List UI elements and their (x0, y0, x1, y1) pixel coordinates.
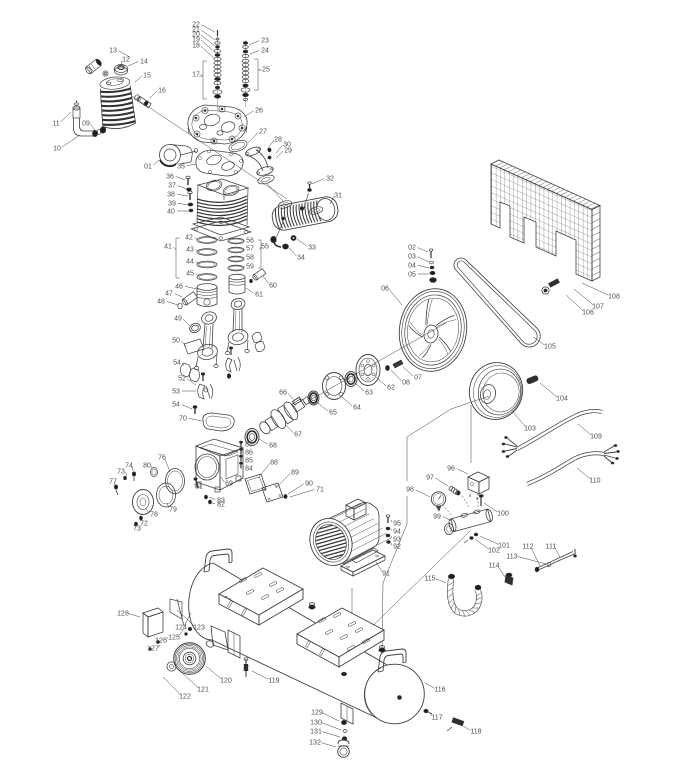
svg-text:80: 80 (143, 462, 151, 469)
svg-text:01: 01 (144, 163, 152, 170)
svg-text:42: 42 (185, 234, 193, 241)
svg-text:11: 11 (52, 120, 59, 127)
svg-text:63: 63 (365, 389, 373, 396)
svg-text:117: 117 (431, 714, 442, 721)
svg-text:23: 23 (261, 37, 269, 44)
svg-text:28: 28 (274, 136, 282, 143)
svg-text:25: 25 (262, 66, 270, 73)
svg-text:43: 43 (186, 246, 194, 253)
svg-text:115: 115 (424, 575, 435, 582)
svg-text:57: 57 (246, 245, 254, 252)
svg-text:16: 16 (158, 87, 166, 94)
svg-text:111: 111 (546, 543, 557, 550)
svg-text:106: 106 (582, 309, 594, 316)
svg-text:45: 45 (186, 270, 194, 277)
svg-text:116: 116 (434, 686, 445, 693)
svg-text:130: 130 (310, 719, 322, 726)
svg-text:24: 24 (261, 47, 269, 54)
svg-text:103: 103 (524, 425, 536, 432)
svg-text:64: 64 (353, 404, 361, 411)
svg-text:110: 110 (589, 477, 600, 484)
svg-text:73: 73 (133, 525, 141, 532)
svg-text:102: 102 (488, 547, 500, 554)
svg-text:07: 07 (414, 374, 422, 381)
svg-text:98: 98 (406, 486, 414, 493)
svg-text:97: 97 (426, 474, 434, 481)
svg-text:44: 44 (186, 258, 194, 265)
svg-text:35: 35 (177, 163, 185, 170)
svg-text:118: 118 (470, 728, 481, 735)
svg-text:69: 69 (225, 480, 233, 487)
svg-text:56: 56 (246, 237, 254, 244)
svg-text:101: 101 (498, 542, 510, 549)
svg-text:39: 39 (168, 200, 176, 207)
svg-text:74: 74 (125, 462, 133, 469)
svg-text:100: 100 (497, 510, 509, 517)
svg-text:05: 05 (408, 271, 416, 278)
svg-text:127: 127 (147, 645, 159, 652)
svg-text:125: 125 (168, 634, 180, 641)
svg-text:73: 73 (117, 468, 125, 475)
svg-text:88: 88 (270, 459, 278, 466)
svg-text:13: 13 (109, 47, 117, 54)
svg-text:26: 26 (255, 107, 263, 114)
svg-text:08: 08 (402, 379, 410, 386)
svg-text:72: 72 (140, 520, 148, 527)
svg-text:50: 50 (172, 337, 180, 344)
svg-text:18: 18 (192, 42, 200, 49)
svg-text:52: 52 (178, 375, 186, 382)
svg-text:61: 61 (255, 291, 263, 298)
svg-text:77: 77 (109, 478, 117, 485)
svg-text:65: 65 (329, 409, 337, 416)
svg-text:40: 40 (167, 208, 175, 215)
svg-text:96: 96 (447, 465, 455, 472)
svg-text:122: 122 (179, 693, 191, 700)
svg-text:95: 95 (393, 520, 401, 527)
svg-text:109: 109 (590, 433, 602, 440)
svg-text:93: 93 (393, 536, 401, 543)
svg-text:62: 62 (387, 384, 395, 391)
svg-text:53: 53 (172, 388, 180, 395)
svg-text:68: 68 (269, 442, 277, 449)
svg-text:120: 120 (220, 677, 232, 684)
svg-text:38: 38 (167, 191, 175, 198)
svg-text:04: 04 (408, 262, 416, 269)
svg-text:54: 54 (172, 401, 180, 408)
svg-text:33: 33 (308, 244, 316, 251)
svg-text:36: 36 (166, 173, 174, 180)
svg-text:71: 71 (316, 486, 324, 493)
svg-text:119: 119 (268, 677, 279, 684)
svg-text:31: 31 (334, 192, 342, 199)
svg-text:32: 32 (326, 175, 334, 182)
svg-text:81: 81 (195, 483, 203, 490)
svg-text:06: 06 (381, 285, 389, 292)
svg-text:17: 17 (192, 71, 200, 78)
svg-text:37: 37 (168, 182, 176, 189)
svg-text:55: 55 (261, 243, 269, 250)
svg-text:48: 48 (157, 298, 165, 305)
svg-text:14: 14 (140, 58, 148, 65)
svg-text:94: 94 (393, 528, 401, 535)
svg-text:123: 123 (193, 624, 205, 631)
svg-text:113: 113 (506, 553, 517, 560)
svg-text:58: 58 (246, 254, 254, 261)
svg-text:104: 104 (556, 395, 568, 402)
svg-text:66: 66 (279, 389, 287, 396)
svg-text:27: 27 (259, 128, 267, 135)
svg-text:99: 99 (433, 513, 441, 520)
svg-text:124: 124 (175, 624, 187, 631)
svg-text:10: 10 (53, 145, 61, 152)
svg-text:12: 12 (122, 56, 130, 63)
svg-text:09: 09 (82, 120, 90, 127)
svg-text:54: 54 (173, 359, 181, 366)
svg-text:34: 34 (297, 254, 305, 261)
svg-text:132: 132 (309, 739, 321, 746)
svg-text:128: 128 (117, 610, 129, 617)
svg-text:84: 84 (245, 465, 253, 472)
svg-text:86: 86 (245, 449, 253, 456)
svg-text:70: 70 (179, 415, 187, 422)
svg-text:85: 85 (245, 457, 253, 464)
svg-text:126: 126 (155, 637, 167, 644)
svg-text:82: 82 (217, 501, 225, 508)
svg-text:105: 105 (544, 343, 556, 350)
svg-text:89: 89 (291, 469, 299, 476)
svg-text:78: 78 (150, 511, 158, 518)
svg-text:87: 87 (245, 441, 253, 448)
svg-text:121: 121 (197, 686, 209, 693)
svg-text:60: 60 (269, 282, 277, 289)
svg-text:114: 114 (488, 562, 499, 569)
svg-text:91: 91 (382, 570, 390, 577)
svg-text:107: 107 (592, 303, 604, 310)
svg-text:03: 03 (408, 253, 416, 260)
svg-text:46: 46 (175, 283, 183, 290)
svg-text:129: 129 (311, 709, 323, 716)
svg-text:15: 15 (143, 72, 151, 79)
svg-text:67: 67 (294, 431, 302, 438)
svg-text:90: 90 (305, 480, 313, 487)
svg-text:108: 108 (608, 293, 620, 300)
svg-text:41: 41 (164, 243, 172, 250)
svg-text:02: 02 (408, 244, 416, 251)
svg-text:49: 49 (174, 315, 182, 322)
svg-text:76: 76 (158, 454, 166, 461)
svg-text:92: 92 (393, 543, 401, 550)
svg-text:131: 131 (310, 728, 322, 735)
svg-text:59: 59 (246, 263, 254, 270)
svg-text:79: 79 (169, 506, 177, 513)
svg-text:47: 47 (165, 290, 173, 297)
svg-text:29: 29 (284, 147, 292, 154)
